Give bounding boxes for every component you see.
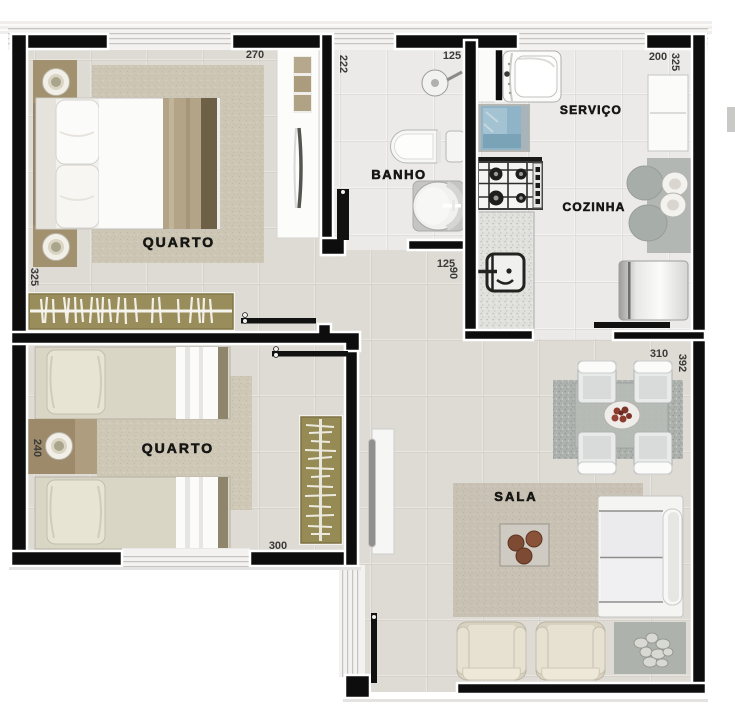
svg-text:240: 240 [31, 439, 43, 457]
svg-text:392: 392 [676, 354, 688, 372]
svg-text:BANHO: BANHO [371, 167, 426, 182]
svg-text:COZINHA: COZINHA [562, 200, 625, 214]
svg-text:125: 125 [443, 50, 461, 62]
svg-text:325: 325 [669, 53, 681, 71]
svg-text:222: 222 [337, 55, 349, 73]
svg-text:90: 90 [447, 267, 459, 279]
svg-text:QUARTO: QUARTO [143, 234, 215, 250]
svg-text:QUARTO: QUARTO [142, 440, 214, 456]
svg-text:300: 300 [269, 540, 287, 552]
svg-text:270: 270 [246, 49, 264, 61]
svg-text:SERVIÇO: SERVIÇO [560, 103, 622, 117]
svg-text:325: 325 [28, 268, 40, 286]
svg-text:310: 310 [650, 348, 668, 360]
svg-text:SALA: SALA [494, 489, 537, 504]
svg-text:200: 200 [649, 51, 667, 63]
